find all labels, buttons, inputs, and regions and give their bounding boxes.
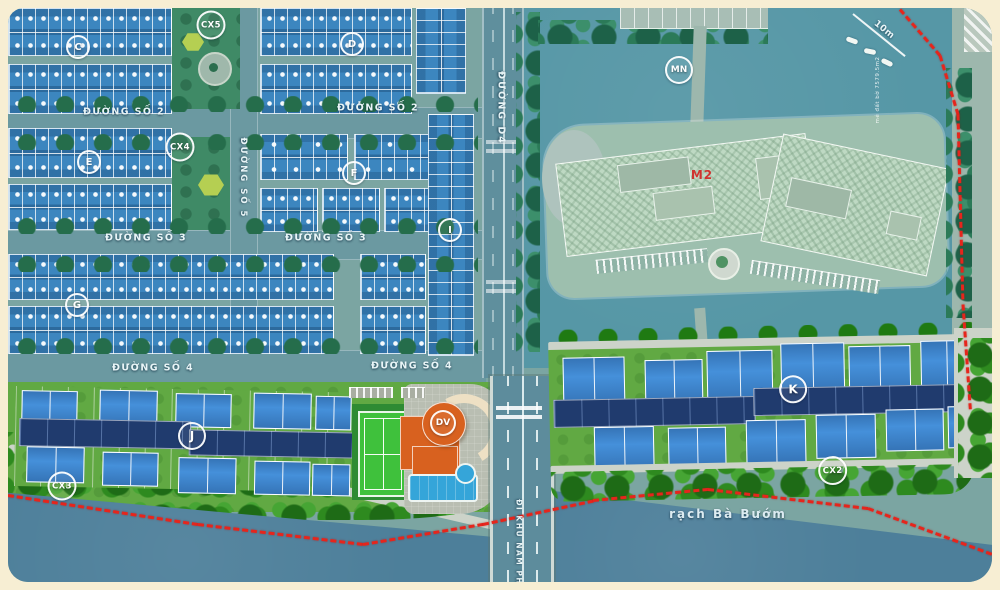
zone-label-text: D	[348, 39, 356, 50]
zone-label-c: C	[66, 35, 90, 59]
villa-roof	[312, 464, 351, 497]
jacuzzi-pool	[455, 463, 476, 484]
zone-label-m2: M2	[691, 168, 713, 182]
zone-label-cx3: CX3	[48, 472, 77, 501]
pavilion-hexagon	[198, 173, 224, 197]
river-label: rạch Bà Bướm	[669, 507, 787, 521]
zone-label-dv: DV	[430, 410, 456, 436]
masterplan-page: CX2 K C CX5 D E CX4 F I G MN M2 J DV CX3…	[0, 0, 1000, 590]
road-label-text: ĐƯỜNG SỐ 5	[238, 138, 248, 219]
road-label-text: ĐƯỜNG SỐ 2	[83, 107, 165, 118]
zone-label-text: CX5	[201, 20, 221, 30]
villa-roof	[254, 461, 311, 496]
zone-label-text: C	[74, 42, 81, 53]
roof-detail	[617, 156, 692, 193]
zone-label-text: M2	[691, 168, 713, 182]
housing-block-d-row1	[260, 8, 412, 56]
corner-road-hatch	[964, 8, 992, 52]
court-lines	[364, 418, 402, 490]
road-label-text: ĐI KHU NAM PHÚ	[515, 499, 524, 582]
villa-roof	[253, 393, 312, 430]
housing-block-c-row1	[8, 8, 172, 56]
boundary-note: mé đất bờ 7579.5m2	[875, 57, 881, 124]
road-label-so4-west: ĐƯỜNG SỐ 4	[112, 363, 194, 374]
lane-marking	[492, 8, 494, 378]
street-trees	[8, 218, 478, 234]
road-label-text: ĐƯỜNG D4	[496, 71, 507, 145]
villa-roof	[178, 457, 237, 494]
zone-label-i: I	[438, 218, 462, 242]
zone-label-text: MN	[671, 65, 688, 75]
zone-label-d: D	[340, 32, 364, 56]
zone-label-text: F	[351, 168, 358, 179]
road-label-text: ĐƯỜNG SỐ 4	[112, 363, 194, 374]
street-trees	[8, 256, 478, 272]
road-label-so3-west: ĐƯỜNG SỐ 3	[105, 233, 187, 244]
street-trees	[8, 338, 478, 354]
road-label-text: ĐƯỜNG SỐ 3	[285, 233, 367, 244]
road-label-text: ĐƯỜNG SỐ 3	[105, 233, 187, 244]
villa-roof	[816, 414, 877, 459]
roof-detail	[886, 211, 922, 241]
zone-label-cx4: CX4	[166, 133, 195, 162]
zone-label-cx5: CX5	[197, 11, 226, 40]
roof-detail	[785, 177, 852, 219]
roof-detail	[653, 186, 716, 221]
zone-label-j: J	[178, 422, 206, 450]
plaza-center	[209, 63, 218, 72]
road-label-so2-east: ĐƯỜNG SỐ 2	[337, 103, 419, 114]
zone-label-f: F	[342, 161, 366, 185]
zone-label-text: CX2	[823, 465, 843, 475]
zone-label-g: G	[65, 293, 89, 317]
housing-strip-east-of-d	[416, 8, 466, 94]
parking-row	[401, 387, 425, 398]
road-label-so3-east: ĐƯỜNG SỐ 3	[285, 233, 367, 244]
masterplan-map: CX2 K C CX5 D E CX4 F I G MN M2 J DV CX3…	[8, 8, 992, 582]
river-label-text: rạch Bà Bướm	[669, 507, 787, 521]
shore-trees	[516, 12, 540, 352]
villa-roof	[746, 419, 807, 464]
road-median	[503, 8, 505, 378]
parking-row	[349, 387, 393, 398]
zone-label-text: K	[788, 382, 798, 396]
zone-label-text: I	[448, 225, 452, 236]
boundary-note-text: mé đất bờ 7579.5m2	[875, 57, 881, 124]
zone-label-mn: MN	[665, 56, 693, 84]
zone-label-e: E	[77, 150, 101, 174]
villa-roof	[315, 396, 352, 431]
villa-roof	[102, 452, 159, 487]
promenade-trees-south	[958, 338, 992, 478]
road-label-so5: ĐƯỜNG SỐ 5	[238, 138, 248, 219]
zone-label-text: J	[190, 429, 194, 443]
zone-label-text: CX3	[52, 481, 72, 491]
fountain-center	[716, 256, 728, 268]
lane-marking	[512, 8, 514, 378]
solar-roof-strip	[19, 418, 192, 449]
road-label-so2-west: ĐƯỜNG SỐ 2	[83, 107, 165, 118]
zone-label-text: E	[86, 157, 93, 168]
solar-roof-strip	[553, 396, 756, 428]
road-label-text: ĐƯỜNG SỐ 4	[371, 361, 453, 372]
k-block: CX2 K	[548, 326, 975, 510]
zone-label-text: CX4	[170, 142, 190, 152]
road-label-d4: ĐƯỜNG D4	[496, 71, 507, 145]
road-label-so4-east: ĐƯỜNG SỐ 4	[371, 361, 453, 372]
road-label-nam-phu: ĐI KHU NAM PHÚ	[515, 499, 524, 582]
crosswalk	[496, 406, 542, 422]
zone-label-text: G	[73, 300, 81, 311]
solar-roof-strip	[189, 429, 353, 458]
zone-label-text: DV	[436, 418, 450, 428]
crosswalk	[486, 280, 516, 294]
road-label-text: ĐƯỜNG SỐ 2	[337, 103, 419, 114]
villa-roof	[886, 408, 945, 451]
